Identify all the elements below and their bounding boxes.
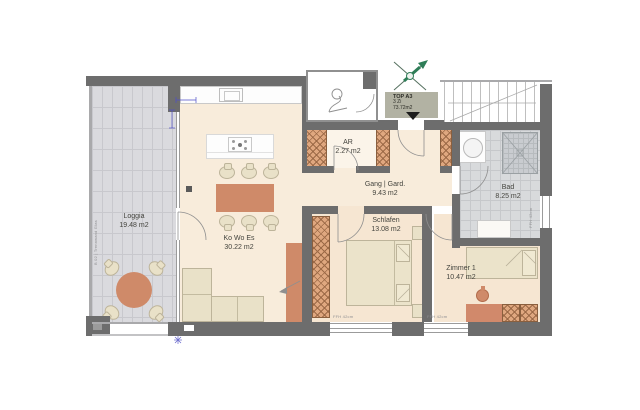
- room-label-hallway: Gang | Gard. 9.43 m2: [365, 180, 405, 199]
- wall-shaft-left: [302, 130, 307, 167]
- wall-stub: [168, 86, 180, 112]
- loggia-edge-line: [92, 334, 178, 336]
- room-label-bedroom: Schlafen 13.08 m2: [371, 216, 400, 235]
- vase-icon: [476, 289, 489, 302]
- basin-icon: [463, 138, 483, 158]
- bar-stool: [241, 166, 257, 179]
- window-sill-label-vertical: FFH 42cm: [528, 198, 533, 228]
- wall-bottom-pier: [392, 322, 424, 336]
- room-area: 19.48 m2: [119, 221, 148, 230]
- room-label-room1: Zimmer 1 10.47 m2: [446, 264, 476, 283]
- room-label-living: Ko Wo Es 30.22 m2: [224, 234, 255, 253]
- wall-bath-bottom: [452, 238, 540, 246]
- kitchen-sink: [219, 88, 243, 102]
- glass-front: [179, 112, 180, 208]
- room-name: AR: [335, 138, 360, 147]
- room-name: Schlafen: [371, 216, 400, 225]
- bed-head-line: [394, 241, 395, 305]
- installation-shaft: [306, 128, 327, 167]
- burner-knob-icon: [238, 143, 242, 147]
- burner-icon: [244, 147, 247, 150]
- shower: [502, 132, 538, 174]
- room-area: 2.27 m2: [335, 147, 360, 156]
- tv-sideboard: [286, 243, 302, 322]
- bar-stool: [219, 166, 235, 179]
- pillow: [396, 244, 410, 262]
- staircase: [444, 82, 540, 122]
- room-area: 10.47 m2: [446, 273, 476, 282]
- island-edge-line: [207, 152, 273, 153]
- elevator-shaft: [306, 70, 378, 122]
- wall-hall-bedroom: [302, 206, 338, 214]
- room-area: 13.08 m2: [371, 225, 400, 234]
- survey-mark-icon: [174, 336, 182, 344]
- pillow: [396, 284, 410, 302]
- burner-icon: [244, 140, 247, 143]
- bar-stool: [263, 166, 279, 179]
- room-name: Ko Wo Es: [224, 234, 255, 243]
- glass-front: [176, 240, 177, 322]
- wardrobe-crosshatch: [520, 304, 538, 322]
- vase-neck-icon: [481, 286, 485, 290]
- entry-door-gap: [398, 120, 424, 130]
- room-area: 8.25 m2: [495, 192, 520, 201]
- wall-top: [86, 76, 308, 86]
- bathroom-window: [540, 196, 552, 228]
- glass-front: [176, 112, 177, 208]
- room-area: 9.43 m2: [365, 189, 405, 198]
- washbasin-vanity: [458, 131, 486, 163]
- window-sill-label: FFH 42cm: [333, 314, 353, 319]
- burner-icon: [232, 140, 235, 143]
- sofa-cushion-line: [183, 294, 211, 295]
- wall-wardrobe-front: [440, 166, 452, 173]
- wall-bedroom-room1: [422, 206, 432, 322]
- room-name: Loggia: [119, 212, 148, 221]
- dining-chair: [241, 215, 257, 228]
- loggia-parapet-bottom: [92, 322, 168, 324]
- unit-total-area: 73.72m2: [393, 106, 438, 112]
- wall-notch: [184, 325, 194, 331]
- wall-ar-front: [356, 166, 390, 173]
- dining-chair: [263, 215, 279, 228]
- wardrobe-crosshatch: [502, 304, 520, 322]
- elevator-wall-block: [363, 72, 376, 89]
- hall-wardrobe: [440, 128, 452, 167]
- entrance-arrow-icon: [406, 112, 420, 120]
- bedroom-window: [330, 323, 392, 333]
- north-compass-icon: [394, 60, 428, 90]
- loggia-parapet-left: [89, 86, 92, 324]
- room-label-loggia: Loggia 19.48 m2: [119, 212, 148, 231]
- bedroom-wardrobe: [312, 216, 330, 318]
- burner-icon: [232, 147, 235, 150]
- sofa-chaise: [182, 268, 212, 322]
- bathtub: [477, 220, 511, 238]
- sink-basin: [224, 91, 240, 101]
- wall-bath-left: [452, 122, 460, 166]
- wall-living-bedroom: [302, 207, 312, 336]
- room-label-storage: AR 2.27 m2: [335, 138, 360, 157]
- wall-hall-bedroom: [364, 206, 422, 214]
- floor-plan: TOP A3 3 Zi 73.72m2: [0, 0, 640, 410]
- cooktop: [228, 137, 252, 152]
- round-terrace-table: [116, 272, 152, 308]
- room-area: 30.22 m2: [224, 243, 255, 252]
- room-name: Gang | Gard.: [365, 180, 405, 189]
- floor-marker: [186, 186, 192, 192]
- pillow: [522, 250, 536, 276]
- room-label-bathroom: Bad 8.25 m2: [495, 183, 520, 202]
- sideboard: [466, 304, 502, 322]
- room-name: Bad: [495, 183, 520, 192]
- room-name: Zimmer 1: [446, 264, 476, 273]
- room1-window: [424, 323, 468, 333]
- wall-ar-front: [302, 166, 334, 173]
- dining-chair: [219, 215, 235, 228]
- sofa-cushion-line: [237, 297, 238, 321]
- dining-table: [216, 184, 274, 212]
- glass-front: [179, 240, 180, 322]
- installation-shaft: [376, 128, 390, 167]
- loggia-partition-note: B 02 | Trennwand Glas: [93, 185, 98, 265]
- window-sill-label: FFH 42cm: [427, 314, 447, 319]
